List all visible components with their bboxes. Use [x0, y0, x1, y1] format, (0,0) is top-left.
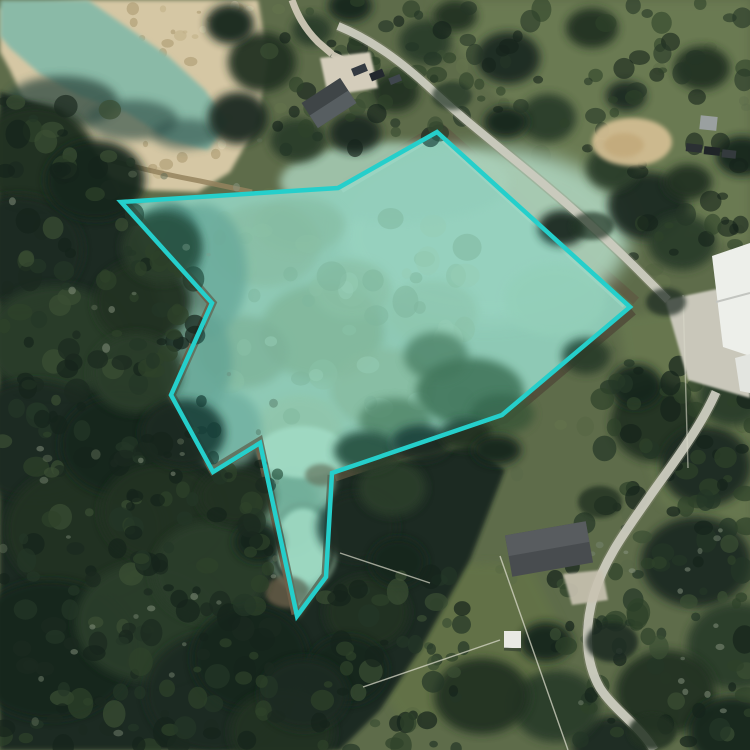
forest-texture-west-blob	[17, 548, 36, 572]
forest-texture-southwest-blob	[205, 664, 230, 689]
forest-texture-rightmid-blob	[627, 397, 641, 410]
grass-texture-blob	[739, 96, 749, 105]
forest-texture-south-blob	[447, 667, 461, 678]
forest-texture-west-blob	[113, 450, 135, 467]
forest-speckle-br-blob	[720, 708, 727, 713]
forest-texture-bottomright-blob	[709, 718, 731, 741]
forest-speckle-br-blob	[678, 678, 685, 684]
forest-texture-bottomright-blob	[610, 727, 624, 738]
forest-texture-south-blob	[311, 690, 334, 711]
forest-texture-topright-2-blob	[637, 214, 658, 231]
forest-texture-west-blob	[27, 571, 40, 581]
forest-texture-topmid-blob	[414, 10, 423, 19]
forest-texture-topright-2-blob	[717, 193, 728, 200]
forest-texture-southwest-blob	[237, 731, 256, 750]
forest-speckle-west-blob	[102, 343, 110, 353]
forest-texture-southwest-blob	[240, 502, 253, 514]
forest-speckle-west-blob	[177, 438, 184, 444]
forest-texture-southwest-blob	[170, 590, 188, 608]
forest-texture-west-blob	[7, 304, 32, 321]
beach-texture-b-blob	[177, 152, 188, 163]
forest-texture-west-blob	[28, 115, 38, 123]
forest-speckle-br-blob	[713, 535, 721, 541]
canopy-over-road	[432, 82, 472, 110]
forest-texture-topmid-blob	[260, 43, 278, 59]
canopy-over-road	[570, 212, 614, 240]
forest-texture-topmid-blob	[393, 16, 404, 27]
forest-speckle-west-blob	[171, 472, 176, 477]
forest-texture-west-blob	[83, 645, 106, 661]
forest-texture-topmid-blob	[280, 143, 293, 156]
forest-speckle-br-blob	[578, 700, 584, 705]
forest-texture-south-blob	[400, 713, 417, 733]
forest-texture-southwest-blob	[163, 584, 174, 591]
forest-texture-topright-blob	[496, 45, 510, 57]
forest-texture-south-blob	[336, 642, 354, 656]
forest-texture-west-blob	[46, 630, 65, 644]
forest-texture-topright-2-blob	[664, 222, 674, 228]
forest-canopy	[208, 92, 268, 144]
forest-texture-topright-blob	[493, 106, 503, 113]
forest-texture-topmid-blob	[312, 132, 323, 142]
forest-texture-topright-2-blob	[627, 165, 648, 179]
forest-texture-bottomright-blob	[550, 628, 561, 640]
forest-texture-topright-blob	[625, 90, 643, 105]
forest-texture-topmid-blob	[272, 121, 283, 132]
forest-texture-bottomright-blob	[717, 591, 727, 603]
forest-speckle-br-blob	[716, 644, 725, 650]
forest-texture-west-blob	[19, 250, 35, 267]
forest-texture-west-blob	[19, 377, 37, 399]
forest-texture-bottomright-blob	[727, 660, 744, 672]
forest-speckle-br-blob	[704, 691, 710, 698]
forest-texture-west-blob	[43, 432, 52, 438]
forest-texture-topright-blob	[477, 96, 485, 102]
beach-texture-a-blob	[183, 30, 188, 33]
forest-texture-south-blob	[408, 635, 423, 654]
canopy-over-road	[586, 622, 638, 662]
forest-texture-south-blob	[327, 590, 351, 606]
forest-speckle-west-blob	[68, 287, 76, 295]
forest-canopy	[206, 4, 254, 44]
forest-texture-west-blob	[14, 599, 38, 619]
forest-texture-west-blob	[54, 261, 75, 281]
forest-texture-west-blob	[100, 269, 111, 283]
forest-texture-rightmid-blob	[624, 359, 635, 367]
forest-texture-southwest-blob	[140, 619, 162, 646]
forest-texture-south-blob	[429, 741, 438, 748]
forest-texture-southwest-blob	[249, 652, 258, 660]
forest-texture-south-blob	[442, 618, 452, 628]
aerial-imagery	[0, 0, 750, 750]
forest-texture-west-blob	[42, 511, 62, 528]
forest-texture-notch-blob	[165, 329, 181, 340]
grass-texture-blob	[274, 103, 287, 114]
forest-texture-west-blob	[65, 248, 76, 258]
forest-texture-south-blob	[427, 643, 436, 654]
forest-speckle-west-blob	[147, 605, 155, 611]
forest-texture-topmid-blob	[390, 118, 400, 127]
forest-texture-bottomright-blob	[694, 521, 713, 535]
forest-texture-west-blob	[126, 502, 135, 511]
forest-texture-topright-blob	[723, 13, 737, 22]
forest-speckle-west-blob	[182, 642, 187, 646]
grass-texture-blob	[272, 4, 285, 14]
forest-texture-topright-blob	[629, 50, 650, 65]
forest-texture-southwest-blob	[197, 649, 211, 661]
forest-texture-southwest-blob	[233, 594, 256, 617]
forest-texture-south-blob	[417, 711, 437, 729]
forest-texture-southwest-blob	[267, 710, 285, 722]
forest-speckle-west-blob	[91, 305, 97, 310]
forest-texture-west-blob	[47, 714, 64, 725]
forest-texture-notch-blob	[172, 304, 183, 316]
forest-texture-west-blob	[16, 208, 41, 234]
forest-texture-southwest-blob	[224, 472, 232, 479]
forest-texture-topright-blob	[688, 89, 706, 105]
forest-texture-notch-blob	[135, 261, 147, 276]
forest-speckle-west-blob	[108, 306, 115, 313]
forest-texture-southwest-blob	[199, 633, 208, 642]
forest-texture-topright-blob	[585, 108, 606, 124]
forest-texture-southwest-blob	[163, 542, 174, 553]
forest-texture-bottomright-blob	[693, 556, 704, 567]
forest-texture-west-blob	[44, 467, 59, 477]
forest-texture-west-blob	[6, 95, 25, 110]
forest-texture-rightmid-blob	[696, 435, 713, 449]
forest-texture-west-blob	[126, 158, 135, 167]
forest-texture-topmid-blob	[405, 42, 419, 51]
forest-texture-south-blob	[454, 601, 471, 616]
forest-texture-southwest-blob	[159, 680, 175, 698]
forest-texture-west-blob	[128, 724, 139, 732]
forest-canopy	[473, 435, 521, 465]
forest-texture-southwest-blob	[150, 494, 165, 506]
forest-texture-topright-2-blob	[704, 214, 721, 235]
forest-texture-southwest-blob	[255, 707, 267, 716]
forest-texture-south-blob	[396, 636, 409, 648]
beach-texture-a-blob	[160, 5, 166, 12]
forest-texture-west-blob	[116, 637, 129, 646]
forest-speckle-west-blob	[133, 614, 138, 619]
forest-texture-west-blob	[100, 150, 117, 162]
forest-texture-topright-blob	[533, 76, 543, 84]
forest-texture-topmid-blob	[298, 119, 314, 138]
forest-texture-bottomright-blob	[720, 535, 738, 553]
forest-texture-west-blob	[31, 311, 47, 328]
forest-speckle-br-blob	[685, 567, 691, 571]
forest-texture-rightmid-blob	[696, 489, 714, 511]
grass-texture-blob	[511, 466, 524, 481]
trailer	[704, 146, 721, 156]
forest-texture-rightmid-blob	[667, 506, 681, 516]
forest-texture-west-blob	[24, 337, 34, 348]
forest-texture-west-blob	[72, 330, 80, 339]
grass-texture-blob	[577, 417, 594, 437]
forest-texture-west-blob	[57, 360, 79, 379]
forest-texture-bottomright-blob	[732, 598, 741, 609]
forest-texture-west-blob	[34, 130, 57, 154]
forest-texture-west-blob	[112, 355, 133, 370]
forest-texture-topmid-blob	[289, 77, 304, 93]
forest-texture-west-blob	[68, 585, 80, 596]
forest-speckle-br-blob	[680, 657, 685, 660]
forest-texture-southwest-blob	[244, 547, 257, 558]
forest-speckle-br-blob	[682, 689, 688, 695]
forest-texture-topright-blob	[559, 118, 569, 128]
forest-texture-west-blob	[61, 599, 78, 620]
grass-texture-blob	[555, 420, 567, 430]
forest-texture-south-blob	[422, 671, 445, 693]
forest-texture-west-blob	[2, 281, 14, 294]
forest-texture-topright-blob	[651, 12, 671, 34]
forest-texture-topmid-blob	[433, 21, 452, 39]
forest-texture-west-blob	[68, 688, 94, 719]
forest-speckle-west-blob	[91, 449, 101, 459]
forest-texture-south-blob	[358, 604, 380, 627]
forest-texture-west-blob	[53, 165, 62, 172]
forest-texture-south-blob	[420, 564, 442, 589]
forest-texture-southwest-blob	[152, 553, 168, 572]
forest-texture-topmid-blob	[279, 32, 290, 43]
forest-texture-notch-blob	[141, 434, 154, 443]
forest-texture-bottomright-blob	[672, 555, 687, 566]
forest-texture-west-blob	[49, 294, 71, 316]
forest-texture-topmid-blob	[289, 106, 300, 118]
forest-texture-notch-blob	[146, 353, 160, 369]
forest-texture-topright-blob	[610, 108, 620, 118]
forest-speckle-west-blob	[38, 676, 44, 682]
beach-texture-b-blob	[211, 149, 221, 159]
forest-texture-southwest-blob	[220, 638, 232, 647]
forest-texture-southwest-blob	[174, 716, 197, 739]
forest-texture-west-blob	[74, 420, 91, 441]
forest-texture-southwest-blob	[125, 526, 143, 540]
forest-speckle-west-blob	[128, 171, 137, 178]
canopy-over-road	[628, 714, 676, 750]
forest-speckle-west-blob	[32, 717, 39, 726]
forest-texture-west-blob	[8, 399, 25, 418]
forest-speckle-west-blob	[190, 593, 198, 600]
forest-texture-west-blob	[19, 733, 33, 743]
forest-texture-southwest-blob	[256, 675, 268, 688]
grass-texture-blob	[495, 565, 504, 574]
forest-texture-west-blob	[85, 571, 101, 587]
forest-texture-topright-blob	[584, 78, 593, 86]
forest-speckle-br-blob	[596, 542, 604, 549]
forest-speckle-west-blob	[160, 173, 167, 180]
forest-texture-rightmid-blob	[717, 479, 728, 491]
forest-texture-notch-blob	[128, 250, 136, 256]
forest-texture-west-blob	[43, 217, 64, 240]
forest-texture-bottomright-blob	[728, 682, 736, 691]
forest-texture-west-blob	[56, 703, 68, 713]
forest-speckle-west-blob	[43, 455, 53, 462]
forest-texture-southwest-blob	[235, 671, 252, 684]
forest-texture-topright-blob	[608, 96, 618, 103]
shed-south-shadow	[504, 649, 521, 650]
forest-texture-topright-blob	[672, 62, 691, 84]
forest-texture-southwest-blob	[144, 588, 153, 595]
forest-texture-topright-blob	[642, 9, 653, 18]
forest-speckle-west-blob	[138, 458, 144, 464]
forest-texture-rightmid-blob	[618, 375, 633, 394]
forest-texture-southwest-blob	[207, 507, 227, 522]
forest-texture-southwest-blob	[251, 575, 269, 593]
forest-texture-southwest-blob	[161, 710, 170, 718]
beach-texture-a-blob	[171, 30, 176, 35]
forest-texture-south-blob	[340, 661, 353, 676]
forest-texture-southwest-blob	[196, 558, 218, 574]
forest-texture-topright-blob	[460, 1, 477, 15]
forest-texture-topmid-blob	[367, 104, 387, 123]
forest-texture-rightmid-blob	[607, 418, 622, 436]
forest-speckle-br-blob	[677, 588, 683, 594]
forest-texture-west-blob	[6, 120, 31, 149]
forest-texture-topright-blob	[466, 44, 484, 65]
forest-texture-west-blob	[99, 100, 121, 120]
sand-patch-inner	[604, 133, 644, 157]
forest-texture-topright-blob	[513, 99, 529, 113]
forest-speckle-west-blob	[36, 446, 44, 452]
forest-texture-topright-blob	[474, 79, 484, 90]
forest-texture-bottomright-blob	[647, 657, 665, 675]
forest-texture-rightmid-blob	[660, 371, 680, 396]
beach-texture-a-blob	[161, 39, 173, 48]
forest-texture-topmid-blob	[391, 127, 401, 137]
forest-texture-bottomright-blob	[692, 703, 705, 718]
grass-texture-blob	[456, 59, 468, 74]
forest-texture-south-blob	[425, 593, 448, 611]
forest-texture-topright-2-blob	[729, 224, 739, 235]
forest-texture-south-blob	[380, 640, 388, 646]
forest-texture-south-blob	[452, 615, 471, 634]
forest-texture-bottomright-blob	[680, 594, 698, 609]
beach-texture-a-blob	[192, 34, 199, 39]
forest-texture-southwest-blob	[127, 490, 143, 502]
beach-texture-b-blob	[159, 159, 173, 170]
forest-texture-bottomright-blob	[565, 621, 574, 632]
forest-texture-southwest-blob	[193, 667, 201, 673]
forest-texture-topright-blob	[482, 58, 496, 73]
forest-texture-south-blob	[337, 688, 349, 696]
forest-texture-bottomright-blob	[626, 598, 650, 626]
forest-texture-topmid-blob	[347, 139, 363, 157]
forest-texture-south-blob	[441, 567, 458, 586]
forest-texture-rightmid-blob	[714, 447, 737, 468]
forest-texture-west-blob	[13, 640, 32, 656]
forest-texture-southwest-blob	[203, 727, 221, 739]
forest-speckle-west-blob	[180, 452, 185, 456]
beach-texture-a-blob	[130, 18, 138, 27]
forest-texture-rightmid-blob	[677, 496, 694, 517]
forest-texture-bottomright-blob	[691, 613, 700, 622]
forest-texture-rightmid-blob	[690, 450, 706, 465]
forest-texture-west-blob	[108, 538, 126, 558]
forest-speckle-west-blob	[233, 183, 240, 192]
forest-texture-bottomright-blob	[680, 736, 697, 748]
forest-texture-topright-blob	[686, 50, 706, 64]
forest-texture-bottomright-blob	[699, 588, 707, 596]
forest-texture-topright-blob	[582, 144, 593, 152]
forest-texture-southwest-blob	[177, 511, 193, 525]
beach-texture-b-blob	[143, 141, 148, 147]
forest-texture-topright-blob	[653, 43, 671, 63]
forest-texture-bottomright-blob	[649, 635, 668, 659]
forest-canopy	[520, 94, 576, 142]
forest-speckle-west-blob	[113, 730, 123, 737]
forest-texture-west-blob	[58, 682, 70, 696]
forest-texture-southwest-blob	[186, 492, 198, 506]
forest-texture-rightmid-blob	[633, 367, 643, 375]
forest-texture-west-blob	[67, 542, 85, 555]
forest-texture-west-blob	[115, 218, 128, 232]
forest-speckle-west-blob	[272, 555, 277, 561]
forest-texture-west-blob	[85, 187, 105, 201]
forest-speckle-west-blob	[132, 292, 137, 295]
forest-speckle-br-blob	[623, 551, 628, 555]
forest-texture-south-blob	[449, 685, 458, 697]
forest-speckle-br-blob	[698, 548, 703, 554]
forest-texture-south-blob	[370, 719, 380, 727]
forest-texture-west-blob	[79, 725, 88, 736]
forest-texture-topright-2-blob	[675, 203, 696, 226]
forest-texture-topright-2-blob	[669, 249, 679, 256]
forest-speckle-west-blob	[169, 672, 175, 677]
forest-texture-west-blob	[54, 95, 78, 118]
forest-texture-southwest-blob	[169, 469, 183, 484]
forest-texture-topmid-blob	[306, 7, 315, 15]
forest-texture-west-blob	[50, 415, 67, 434]
forest-texture-southwest-blob	[134, 686, 145, 699]
forest-speckle-west-blob	[89, 624, 95, 629]
forest-texture-south-blob	[324, 681, 333, 688]
forest-texture-rightmid-blob	[593, 436, 617, 462]
forest-speckle-br-blob	[629, 568, 636, 573]
forest-speckle-west-blob	[257, 138, 263, 142]
forest-texture-west-blob	[64, 637, 79, 650]
forest-texture-notch-blob	[157, 338, 167, 345]
forest-speckle-west-blob	[216, 600, 221, 604]
forest-texture-west-blob	[95, 697, 107, 706]
trailer	[686, 143, 703, 153]
beach-texture-a-blob	[197, 11, 201, 14]
forest-texture-topmid-blob	[378, 20, 394, 32]
forest-texture-west-blob	[58, 338, 80, 360]
shed-topright	[699, 115, 717, 131]
forest-texture-south-blob	[387, 578, 409, 605]
forest-speckle-br-blob	[713, 623, 718, 628]
map-viewport[interactable]	[0, 0, 750, 750]
forest-texture-topright-blob	[496, 86, 506, 95]
forest-texture-rightmid-blob	[620, 424, 642, 443]
forest-texture-west-blob	[113, 683, 128, 700]
forest-texture-west-blob	[85, 508, 94, 516]
forest-speckle-west-blob	[271, 574, 277, 578]
forest-texture-bottomright-blob	[572, 732, 589, 748]
forest-texture-west-blob	[19, 533, 28, 544]
forest-texture-west-blob	[34, 410, 51, 428]
forest-texture-bottomright-blob	[555, 637, 577, 655]
forest-texture-bottomright-blob	[641, 558, 655, 569]
beach-texture-a-blob	[127, 2, 139, 15]
forest-texture-topmid-blob	[424, 52, 442, 66]
forest-texture-southwest-blob	[133, 553, 149, 564]
forest-texture-west-blob	[64, 379, 90, 404]
forest-texture-southwest-blob	[237, 513, 260, 537]
forest-texture-bottomright-blob	[667, 692, 685, 709]
forest-texture-rightmid-blob	[735, 444, 748, 454]
